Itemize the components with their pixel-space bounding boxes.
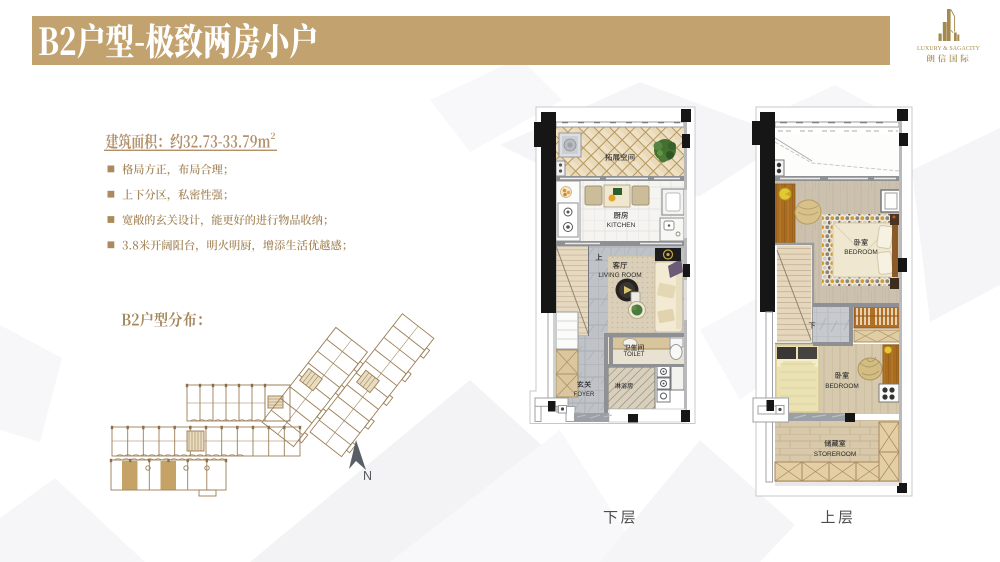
svg-text:LUXURY & SAGACITY: LUXURY & SAGACITY [917,46,981,52]
